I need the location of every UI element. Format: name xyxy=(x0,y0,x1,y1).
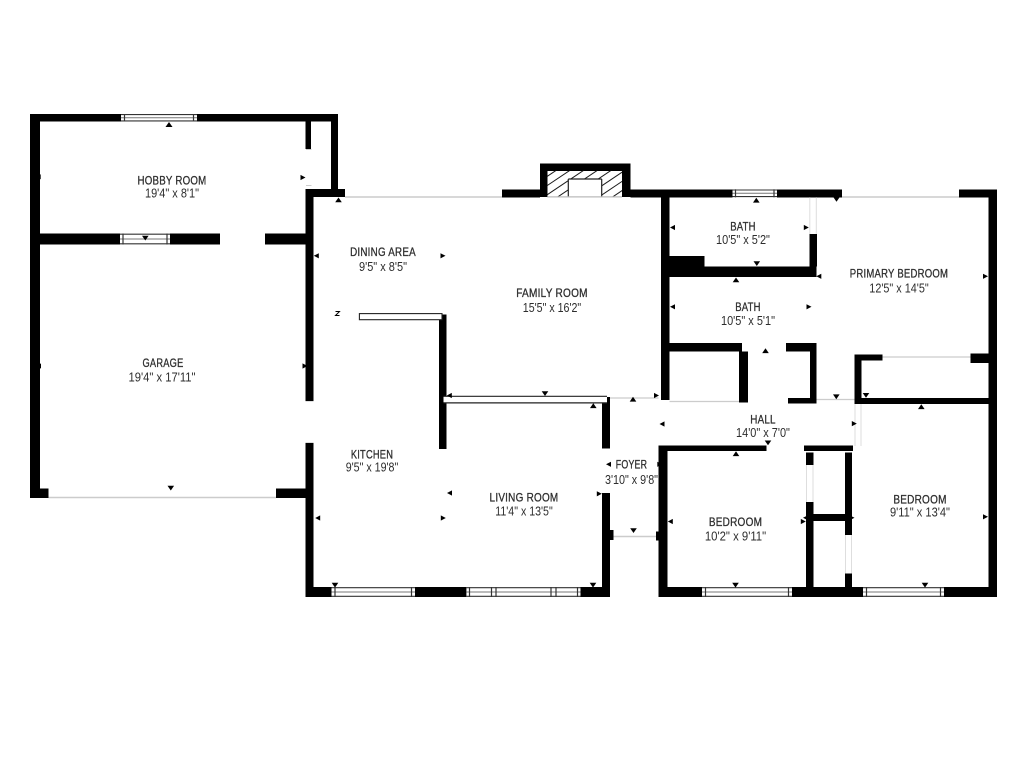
svg-text:9'5" x 8'5": 9'5" x 8'5" xyxy=(359,260,407,274)
svg-text:BEDROOM: BEDROOM xyxy=(893,493,946,507)
svg-text:DINING AREA: DINING AREA xyxy=(350,245,416,259)
svg-text:9'5" x 19'8": 9'5" x 19'8" xyxy=(346,460,399,474)
svg-text:19'4" x 17'11": 19'4" x 17'11" xyxy=(129,370,196,384)
svg-text:14'0" x 7'0": 14'0" x 7'0" xyxy=(736,426,790,440)
svg-text:9'11" x 13'4": 9'11" x 13'4" xyxy=(890,506,950,520)
svg-text:10'5" x 5'2": 10'5" x 5'2" xyxy=(716,233,770,247)
svg-text:BEDROOM: BEDROOM xyxy=(709,515,762,529)
svg-text:KITCHEN: KITCHEN xyxy=(351,447,393,461)
svg-text:15'5" x 16'2": 15'5" x 16'2" xyxy=(523,301,581,315)
svg-text:PRIMARY BEDROOM: PRIMARY BEDROOM xyxy=(850,267,948,281)
svg-text:BATH: BATH xyxy=(730,220,756,234)
svg-text:19'4" x 8'1": 19'4" x 8'1" xyxy=(145,187,199,201)
svg-text:10'2" x 9'11": 10'2" x 9'11" xyxy=(705,530,766,544)
svg-text:HALL: HALL xyxy=(750,413,776,427)
svg-text:BATH: BATH xyxy=(735,300,761,314)
svg-text:11'4" x 13'5": 11'4" x 13'5" xyxy=(495,504,553,518)
svg-text:12'5" x 14'5": 12'5" x 14'5" xyxy=(869,282,928,296)
svg-text:10'5" x 5'1": 10'5" x 5'1" xyxy=(721,314,775,328)
svg-text:GARAGE: GARAGE xyxy=(143,356,184,370)
svg-text:LIVING ROOM: LIVING ROOM xyxy=(490,490,559,504)
svg-text:FAMILY ROOM: FAMILY ROOM xyxy=(516,286,588,300)
svg-text:3'10" x 9'8": 3'10" x 9'8" xyxy=(605,473,658,487)
svg-text:HOBBY ROOM: HOBBY ROOM xyxy=(138,174,207,188)
svg-text:FOYER: FOYER xyxy=(616,458,648,472)
